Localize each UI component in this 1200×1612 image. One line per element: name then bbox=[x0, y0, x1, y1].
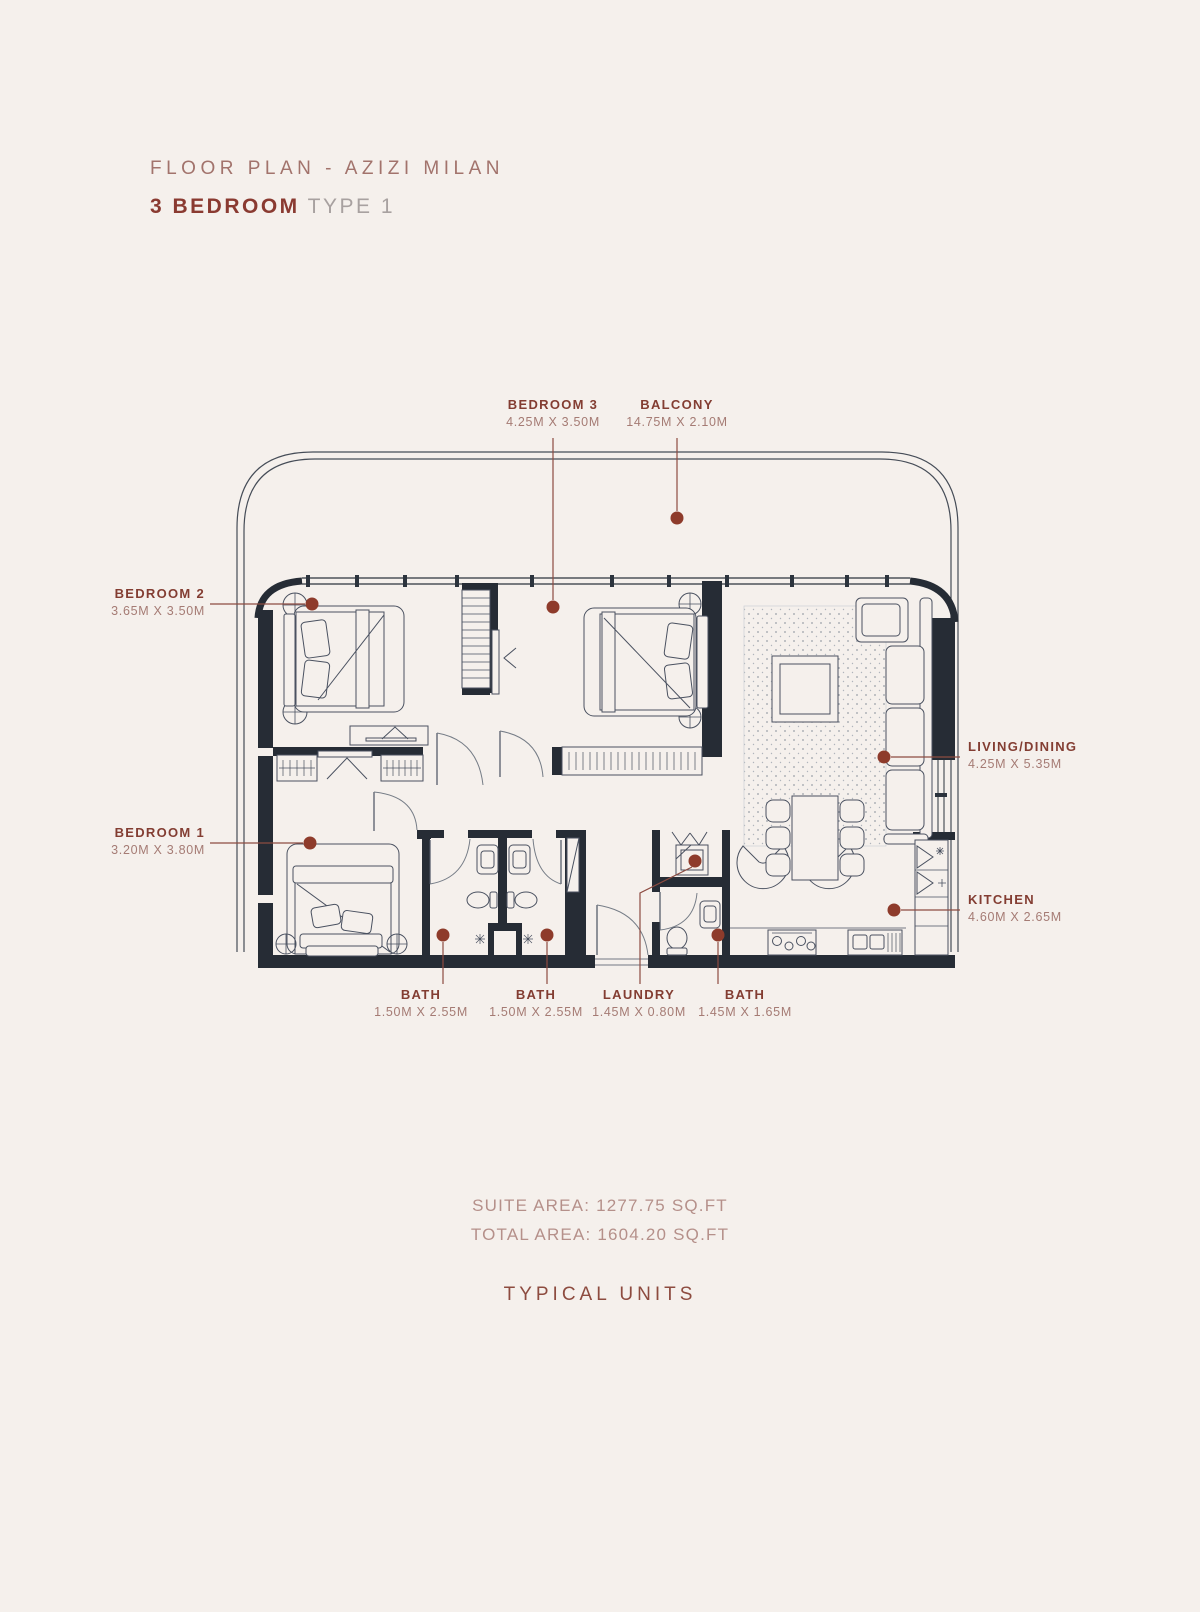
room-name: LAUNDRY bbox=[592, 988, 686, 1001]
total-area-text: TOTAL AREA: 1604.20 SQ.FT bbox=[0, 1225, 1200, 1245]
room-name: KITCHEN bbox=[968, 893, 1062, 906]
room-label-kitchen: KITCHEN 4.60M X 2.65M bbox=[968, 893, 1062, 924]
bedroom3-marker bbox=[547, 601, 560, 614]
room-label-bedroom-2: BEDROOM 2 3.65M X 3.50M bbox=[111, 587, 205, 618]
bath3-marker bbox=[712, 929, 725, 942]
window-mullions bbox=[306, 575, 889, 587]
room-dims: 1.45M X 1.65M bbox=[698, 1006, 792, 1019]
room-label-balcony: BALCONY 14.75M X 2.10M bbox=[626, 398, 728, 429]
bath3-sink bbox=[700, 901, 720, 928]
bedroom3-wardrobe bbox=[562, 747, 702, 775]
wardrobe-shelving bbox=[462, 590, 490, 688]
header: FLOOR PLAN - AZIZI MILAN 3 BEDROOM TYPE … bbox=[150, 158, 504, 219]
room-dims: 14.75M X 2.10M bbox=[626, 416, 728, 429]
unit-type-bold: 3 BEDROOM bbox=[150, 195, 300, 218]
bath1-sink bbox=[477, 845, 498, 874]
room-label-bath-3: BATH 1.45M X 1.65M bbox=[698, 988, 792, 1019]
kitchen-marker bbox=[888, 904, 901, 917]
bedroom1-furniture bbox=[276, 844, 407, 956]
room-dims: 1.50M X 2.55M bbox=[374, 1006, 468, 1019]
room-label-bedroom-3: BEDROOM 3 4.25M X 3.50M bbox=[506, 398, 600, 429]
room-name: BEDROOM 1 bbox=[111, 826, 205, 839]
utility-shaft bbox=[567, 838, 579, 892]
room-name: LIVING/DINING bbox=[968, 740, 1077, 753]
room-label-bedroom-1: BEDROOM 1 3.20M X 3.80M bbox=[111, 826, 205, 857]
room-dims: 4.25M X 3.50M bbox=[506, 416, 600, 429]
dressing-closets bbox=[277, 751, 423, 781]
room-dims: 4.25M X 5.35M bbox=[968, 758, 1077, 771]
typical-units-caption: TYPICAL UNITS bbox=[0, 1284, 1200, 1306]
floor-plan-drawing bbox=[0, 0, 1200, 1612]
page-title: FLOOR PLAN - AZIZI MILAN bbox=[150, 158, 504, 180]
room-name: BATH bbox=[374, 988, 468, 1001]
room-label-bath-2: BATH 1.50M X 2.55M bbox=[489, 988, 583, 1019]
bedroom3-tv bbox=[492, 630, 516, 694]
laundry-bifold-door bbox=[672, 832, 707, 845]
dining-set bbox=[766, 796, 864, 880]
bath3-toilet bbox=[667, 927, 687, 955]
floor-plan-page: FLOOR PLAN - AZIZI MILAN 3 BEDROOM TYPE … bbox=[0, 0, 1200, 1612]
room-label-bath-1: BATH 1.50M X 2.55M bbox=[374, 988, 468, 1019]
bath2-sink bbox=[509, 845, 530, 874]
bedroom2-furniture bbox=[283, 593, 428, 745]
bedroom3-furniture bbox=[492, 593, 708, 728]
coffee-table bbox=[772, 656, 838, 722]
stove bbox=[768, 930, 816, 955]
bath1-toilet bbox=[467, 892, 497, 908]
room-name: BATH bbox=[489, 988, 583, 1001]
room-name: BEDROOM 2 bbox=[111, 587, 205, 600]
bath1-drain bbox=[475, 934, 485, 944]
room-dims: 3.20M X 3.80M bbox=[111, 844, 205, 857]
suite-area-text: SUITE AREA: 1277.75 SQ.FT bbox=[0, 1196, 1200, 1216]
room-name: BATH bbox=[698, 988, 792, 1001]
laundry-marker bbox=[689, 855, 702, 868]
room-dims: 1.50M X 2.55M bbox=[489, 1006, 583, 1019]
room-label-living-dining: LIVING/DINING 4.25M X 5.35M bbox=[968, 740, 1077, 771]
room-name: BEDROOM 3 bbox=[506, 398, 600, 411]
bedroom2-dresser bbox=[350, 726, 428, 745]
room-dims: 3.65M X 3.50M bbox=[111, 605, 205, 618]
bedroom2-marker bbox=[306, 598, 319, 611]
area-summary: SUITE AREA: 1277.75 SQ.FT TOTAL AREA: 16… bbox=[0, 1196, 1200, 1245]
room-label-laundry: LAUNDRY 1.45M X 0.80M bbox=[592, 988, 686, 1019]
unit-type-rest: TYPE 1 bbox=[300, 195, 395, 218]
room-dims: 1.45M X 0.80M bbox=[592, 1006, 686, 1019]
living-marker bbox=[878, 751, 891, 764]
bedroom1-marker bbox=[304, 837, 317, 850]
kitchen-counter-fridge bbox=[915, 840, 948, 955]
page-subtitle: 3 BEDROOM TYPE 1 bbox=[150, 195, 504, 219]
bath2-drain bbox=[523, 934, 533, 944]
bath2-toilet bbox=[507, 892, 537, 908]
bath1-marker bbox=[437, 929, 450, 942]
room-dims: 4.60M X 2.65M bbox=[968, 911, 1062, 924]
kitchen-sink bbox=[848, 930, 902, 955]
bath2-marker bbox=[541, 929, 554, 942]
room-name: BALCONY bbox=[626, 398, 728, 411]
balcony-marker bbox=[671, 512, 684, 525]
